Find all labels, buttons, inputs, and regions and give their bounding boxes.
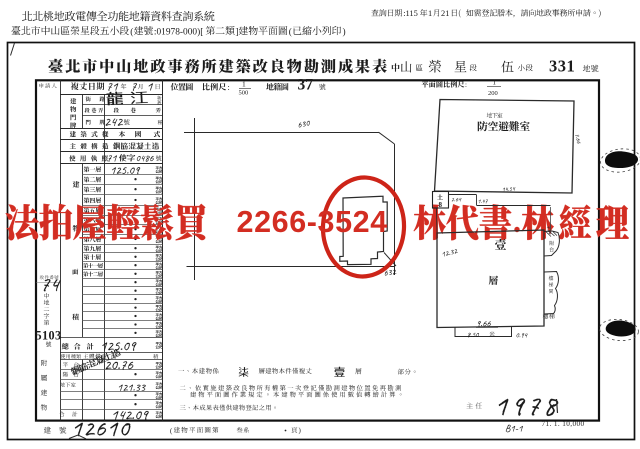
svg-text:1: 1 (242, 80, 246, 89)
svg-text:21: 21 (441, 9, 449, 18)
svg-text:]: ] (235, 27, 238, 37)
svg-text:200: 200 (488, 90, 498, 97)
svg-text:(: ( (289, 26, 292, 37)
svg-text:37: 37 (298, 77, 314, 94)
svg-text::: : (465, 81, 467, 89)
svg-text:500: 500 (239, 90, 249, 97)
svg-text:331: 331 (549, 57, 575, 76)
svg-text:): ) (343, 26, 346, 37)
svg-text:1: 1 (493, 79, 497, 87)
svg-text:8: 8 (439, 201, 443, 209)
svg-text:71. 1. 10,000: 71. 1. 10,000 (542, 420, 585, 428)
svg-text::115: :115 (403, 9, 418, 18)
svg-text:5103: 5103 (36, 329, 62, 343)
svg-text:2266-3524: 2266-3524 (237, 205, 388, 239)
svg-text:1: 1 (428, 9, 432, 18)
svg-text::: : (228, 83, 230, 92)
svg-text:(: ( (130, 26, 133, 37)
svg-text::01978-000)[: :01978-000)[ (154, 26, 203, 37)
